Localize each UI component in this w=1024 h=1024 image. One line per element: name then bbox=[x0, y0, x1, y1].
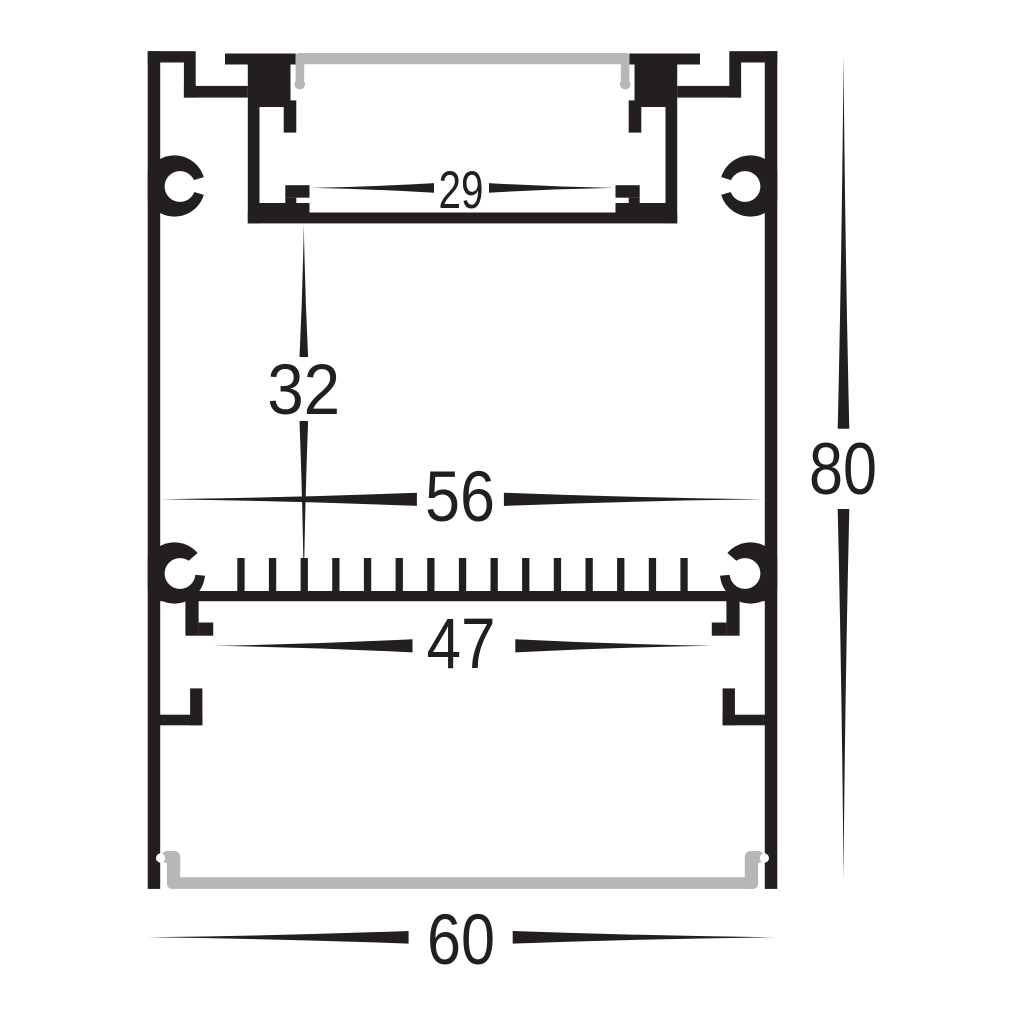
svg-text:32: 32 bbox=[267, 351, 340, 430]
svg-text:80: 80 bbox=[809, 429, 877, 510]
svg-text:29: 29 bbox=[439, 161, 484, 220]
svg-text:47: 47 bbox=[427, 605, 496, 684]
svg-text:60: 60 bbox=[427, 901, 495, 980]
svg-text:56: 56 bbox=[425, 458, 495, 537]
